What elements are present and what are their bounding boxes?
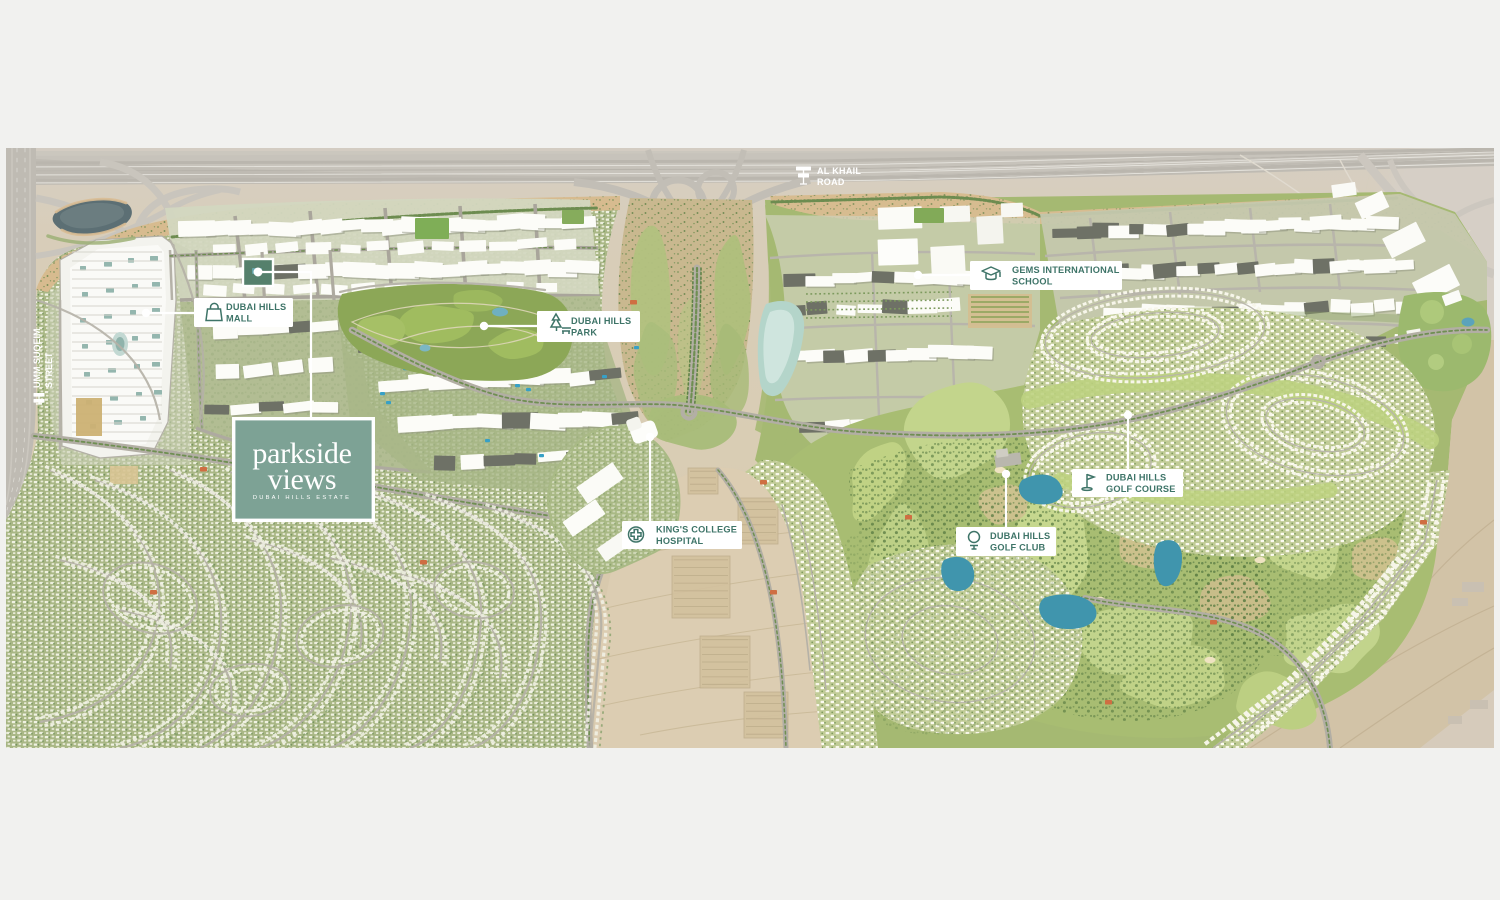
svg-text:DUBAI HILLS: DUBAI HILLS — [226, 302, 286, 312]
svg-text:GOLF COURSE: GOLF COURSE — [1106, 484, 1176, 494]
svg-text:STREET: STREET — [44, 352, 54, 388]
svg-text:DUBAI HILLS: DUBAI HILLS — [571, 316, 631, 326]
svg-text:GOLF CLUB: GOLF CLUB — [990, 542, 1046, 552]
svg-text:AL KHAIL: AL KHAIL — [817, 166, 861, 176]
svg-text:MALL: MALL — [226, 313, 253, 323]
svg-text:GEMS INTERNATIONAL: GEMS INTERNATIONAL — [1012, 265, 1120, 275]
svg-text:HOSPITAL: HOSPITAL — [656, 536, 704, 546]
svg-text:DUBAI HILLS: DUBAI HILLS — [990, 531, 1050, 541]
svg-text:views: views — [268, 463, 337, 496]
svg-text:PARK: PARK — [571, 327, 597, 337]
svg-text:DUBAI HILLS: DUBAI HILLS — [1106, 473, 1166, 483]
svg-text:SCHOOL: SCHOOL — [1012, 276, 1053, 286]
svg-text:ROAD: ROAD — [817, 177, 845, 187]
svg-text:DUBAI HILLS ESTATE: DUBAI HILLS ESTATE — [253, 495, 351, 501]
svg-text:KING'S COLLEGE: KING'S COLLEGE — [656, 525, 737, 535]
svg-text:UMM SUQEIM: UMM SUQEIM — [32, 329, 42, 389]
